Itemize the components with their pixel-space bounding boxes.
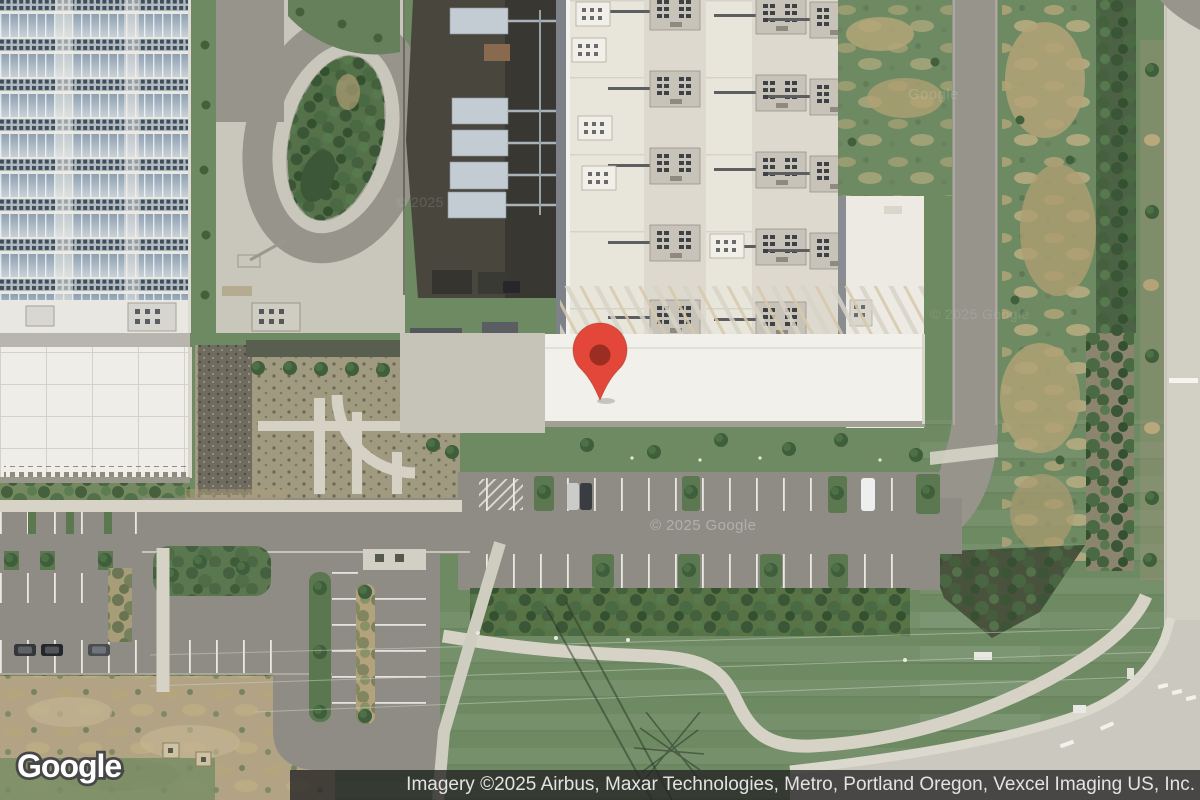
satellite-imagery xyxy=(0,0,1200,800)
equipment-yard xyxy=(404,0,560,298)
attribution-text: Imagery ©2025 Airbus, Maxar Technologies… xyxy=(406,774,1195,796)
attribution-bar: Imagery ©2025 Airbus, Maxar Technologies… xyxy=(290,770,1200,800)
east-street xyxy=(1140,0,1200,665)
map-canvas[interactable]: © 2025 GoogleGoogle© 2025© 2025 Google G… xyxy=(0,0,1200,800)
google-logo-text: Google xyxy=(17,748,121,784)
google-logo[interactable]: Google xyxy=(14,743,154,794)
solar-roof-building xyxy=(0,0,194,347)
